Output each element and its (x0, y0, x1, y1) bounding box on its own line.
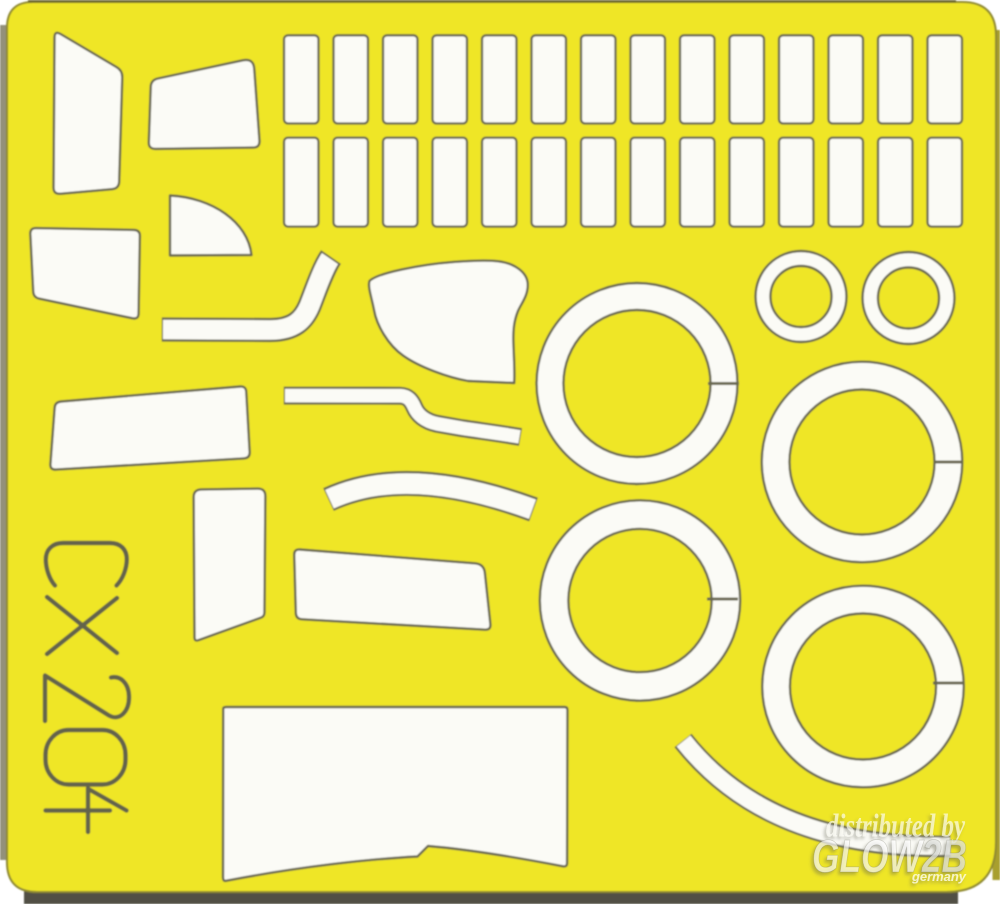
svg-text:germany: germany (911, 869, 967, 884)
